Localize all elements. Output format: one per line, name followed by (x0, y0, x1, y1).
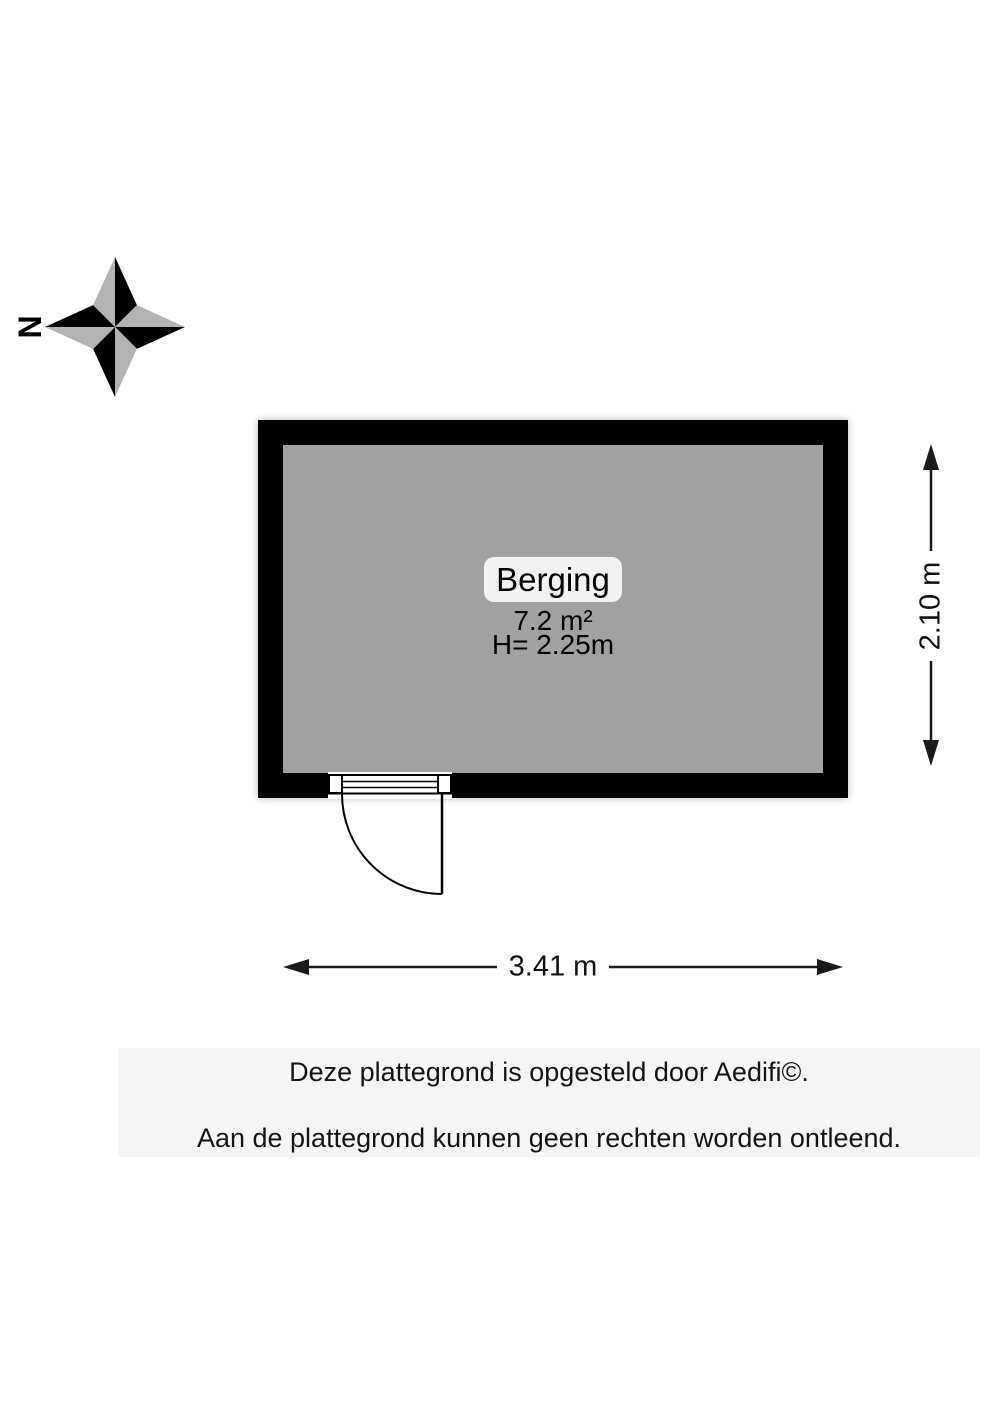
floorplan-page: N Berging 7.2 m² H= 2.25m 2.10 m 3.41 m … (0, 0, 1000, 1414)
door-jamb-left (329, 775, 342, 793)
floorplan-drawing (0, 0, 1000, 1414)
footer-disclaimer: Deze plattegrond is opgesteld door Aedif… (118, 1048, 980, 1157)
door-opening (328, 772, 452, 799)
door (328, 772, 452, 894)
height-dimension-arrowhead-down (923, 740, 939, 766)
width-dimension-label: 3.41 m (509, 951, 598, 984)
room-name-tag: Berging (484, 557, 622, 602)
compass-north-label: N (14, 315, 46, 338)
room-ceiling-height-label: H= 2.25m (492, 633, 614, 657)
height-dimension-arrowhead-up (923, 444, 939, 470)
width-dimension-arrowhead-right (817, 959, 843, 975)
door-swing-arc (342, 794, 442, 894)
width-dimension-arrowhead-left (283, 959, 309, 975)
compass-rose-icon (45, 257, 185, 397)
footer-attribution-text: Deze plattegrond is opgesteld door Aedif… (118, 1057, 980, 1088)
footer-rights-text: Aan de plattegrond kunnen geen rechten w… (118, 1123, 980, 1154)
door-jamb-right (438, 775, 451, 793)
height-dimension-label: 2.10 m (915, 562, 948, 651)
room-label-group: Berging 7.2 m² H= 2.25m (283, 557, 823, 657)
